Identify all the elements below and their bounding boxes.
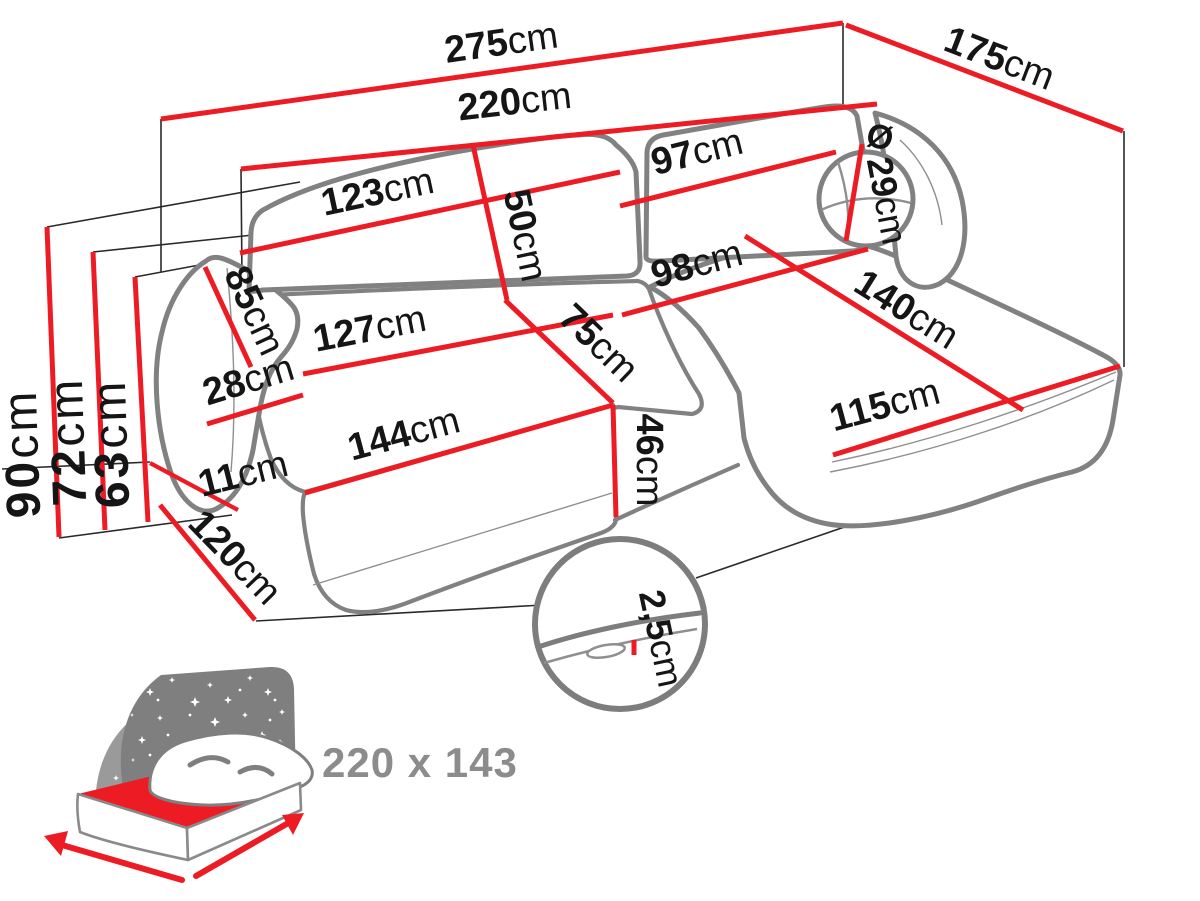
sofa-bed-icon: 220 x 143 [44, 667, 518, 880]
projection-line-left-vertical-2 [241, 169, 242, 278]
star-dot-icon [157, 699, 160, 702]
star-dot-icon [149, 754, 152, 757]
label-seat-height: 46cm [628, 414, 670, 507]
label-total-depth: 175cm [939, 19, 1061, 99]
star-dot-icon [274, 699, 277, 702]
bed-arrow-width-head [44, 831, 68, 856]
projection-line-height-72 [93, 235, 253, 252]
backrest-left-cushion [249, 134, 640, 291]
star-dot-icon [269, 719, 272, 722]
label-seat-width: 220cm [456, 75, 574, 130]
sleeping-area-label: 220 x 143 [322, 739, 518, 786]
label-height-seat: 63cm [83, 378, 140, 509]
sofa-dimensions-diagram: 275cm 175cm 220cm 123cm 97cm 50cm Ø 29cm… [0, 0, 1200, 901]
star-dot-icon [189, 714, 192, 717]
star-dot-icon [167, 734, 170, 737]
dimension-line-46 [613, 405, 616, 517]
star-dot-icon [239, 689, 242, 692]
diagram-stage: 275cm 175cm 220cm 123cm 97cm 50cm Ø 29cm… [0, 0, 1200, 901]
star-icon [105, 739, 111, 745]
